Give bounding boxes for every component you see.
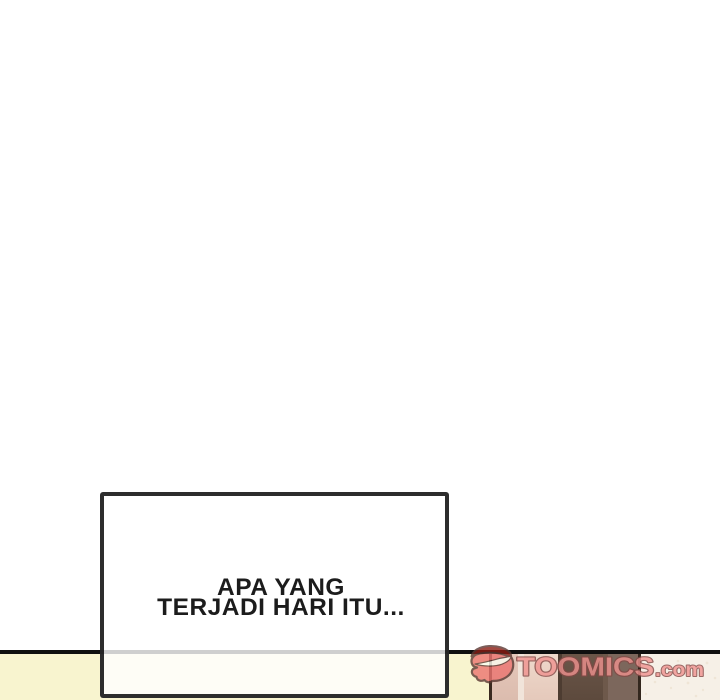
svg-text:TOOMICS: TOOMICS xyxy=(517,652,654,682)
svg-text:.com: .com xyxy=(655,659,704,681)
